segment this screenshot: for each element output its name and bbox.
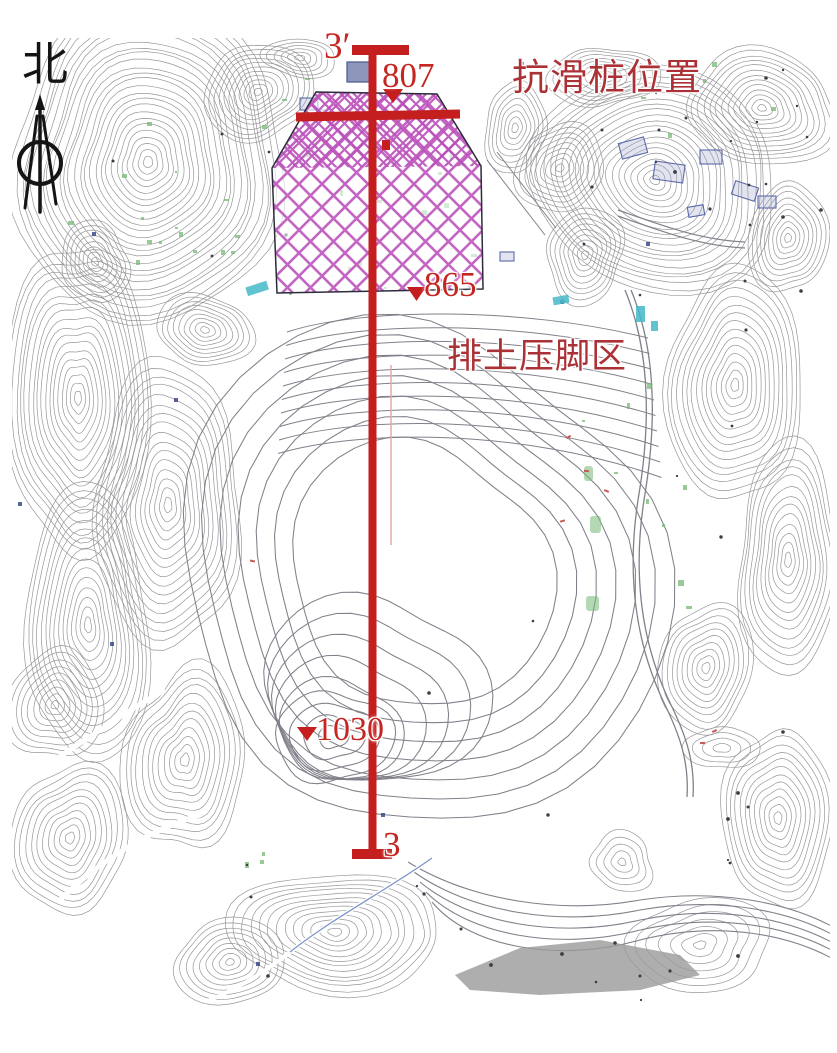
annotation-overlay [0, 0, 837, 1053]
dump-toe-label: 排土压脚区 [447, 339, 627, 374]
section-start-label: 3′ [324, 28, 351, 65]
anti-slide-pile-label: 抗滑桩位置 [512, 60, 702, 97]
pile-row-line [296, 114, 460, 117]
north-label: 北 [22, 42, 68, 88]
section-end-label: 3 [383, 827, 401, 862]
map-figure: 北 3′ 807 865 1030 3 抗滑桩位置 排土压脚区 [0, 0, 837, 1053]
elevation-label-1030: 1030 [316, 713, 384, 747]
elevation-label-807: 807 [382, 58, 435, 93]
dump-hatch-area [272, 92, 483, 293]
elevation-label-865: 865 [424, 267, 477, 302]
survey-point-marker [382, 140, 390, 150]
elev-1030-triangle [297, 727, 317, 741]
north-arrow-icon [19, 94, 61, 212]
